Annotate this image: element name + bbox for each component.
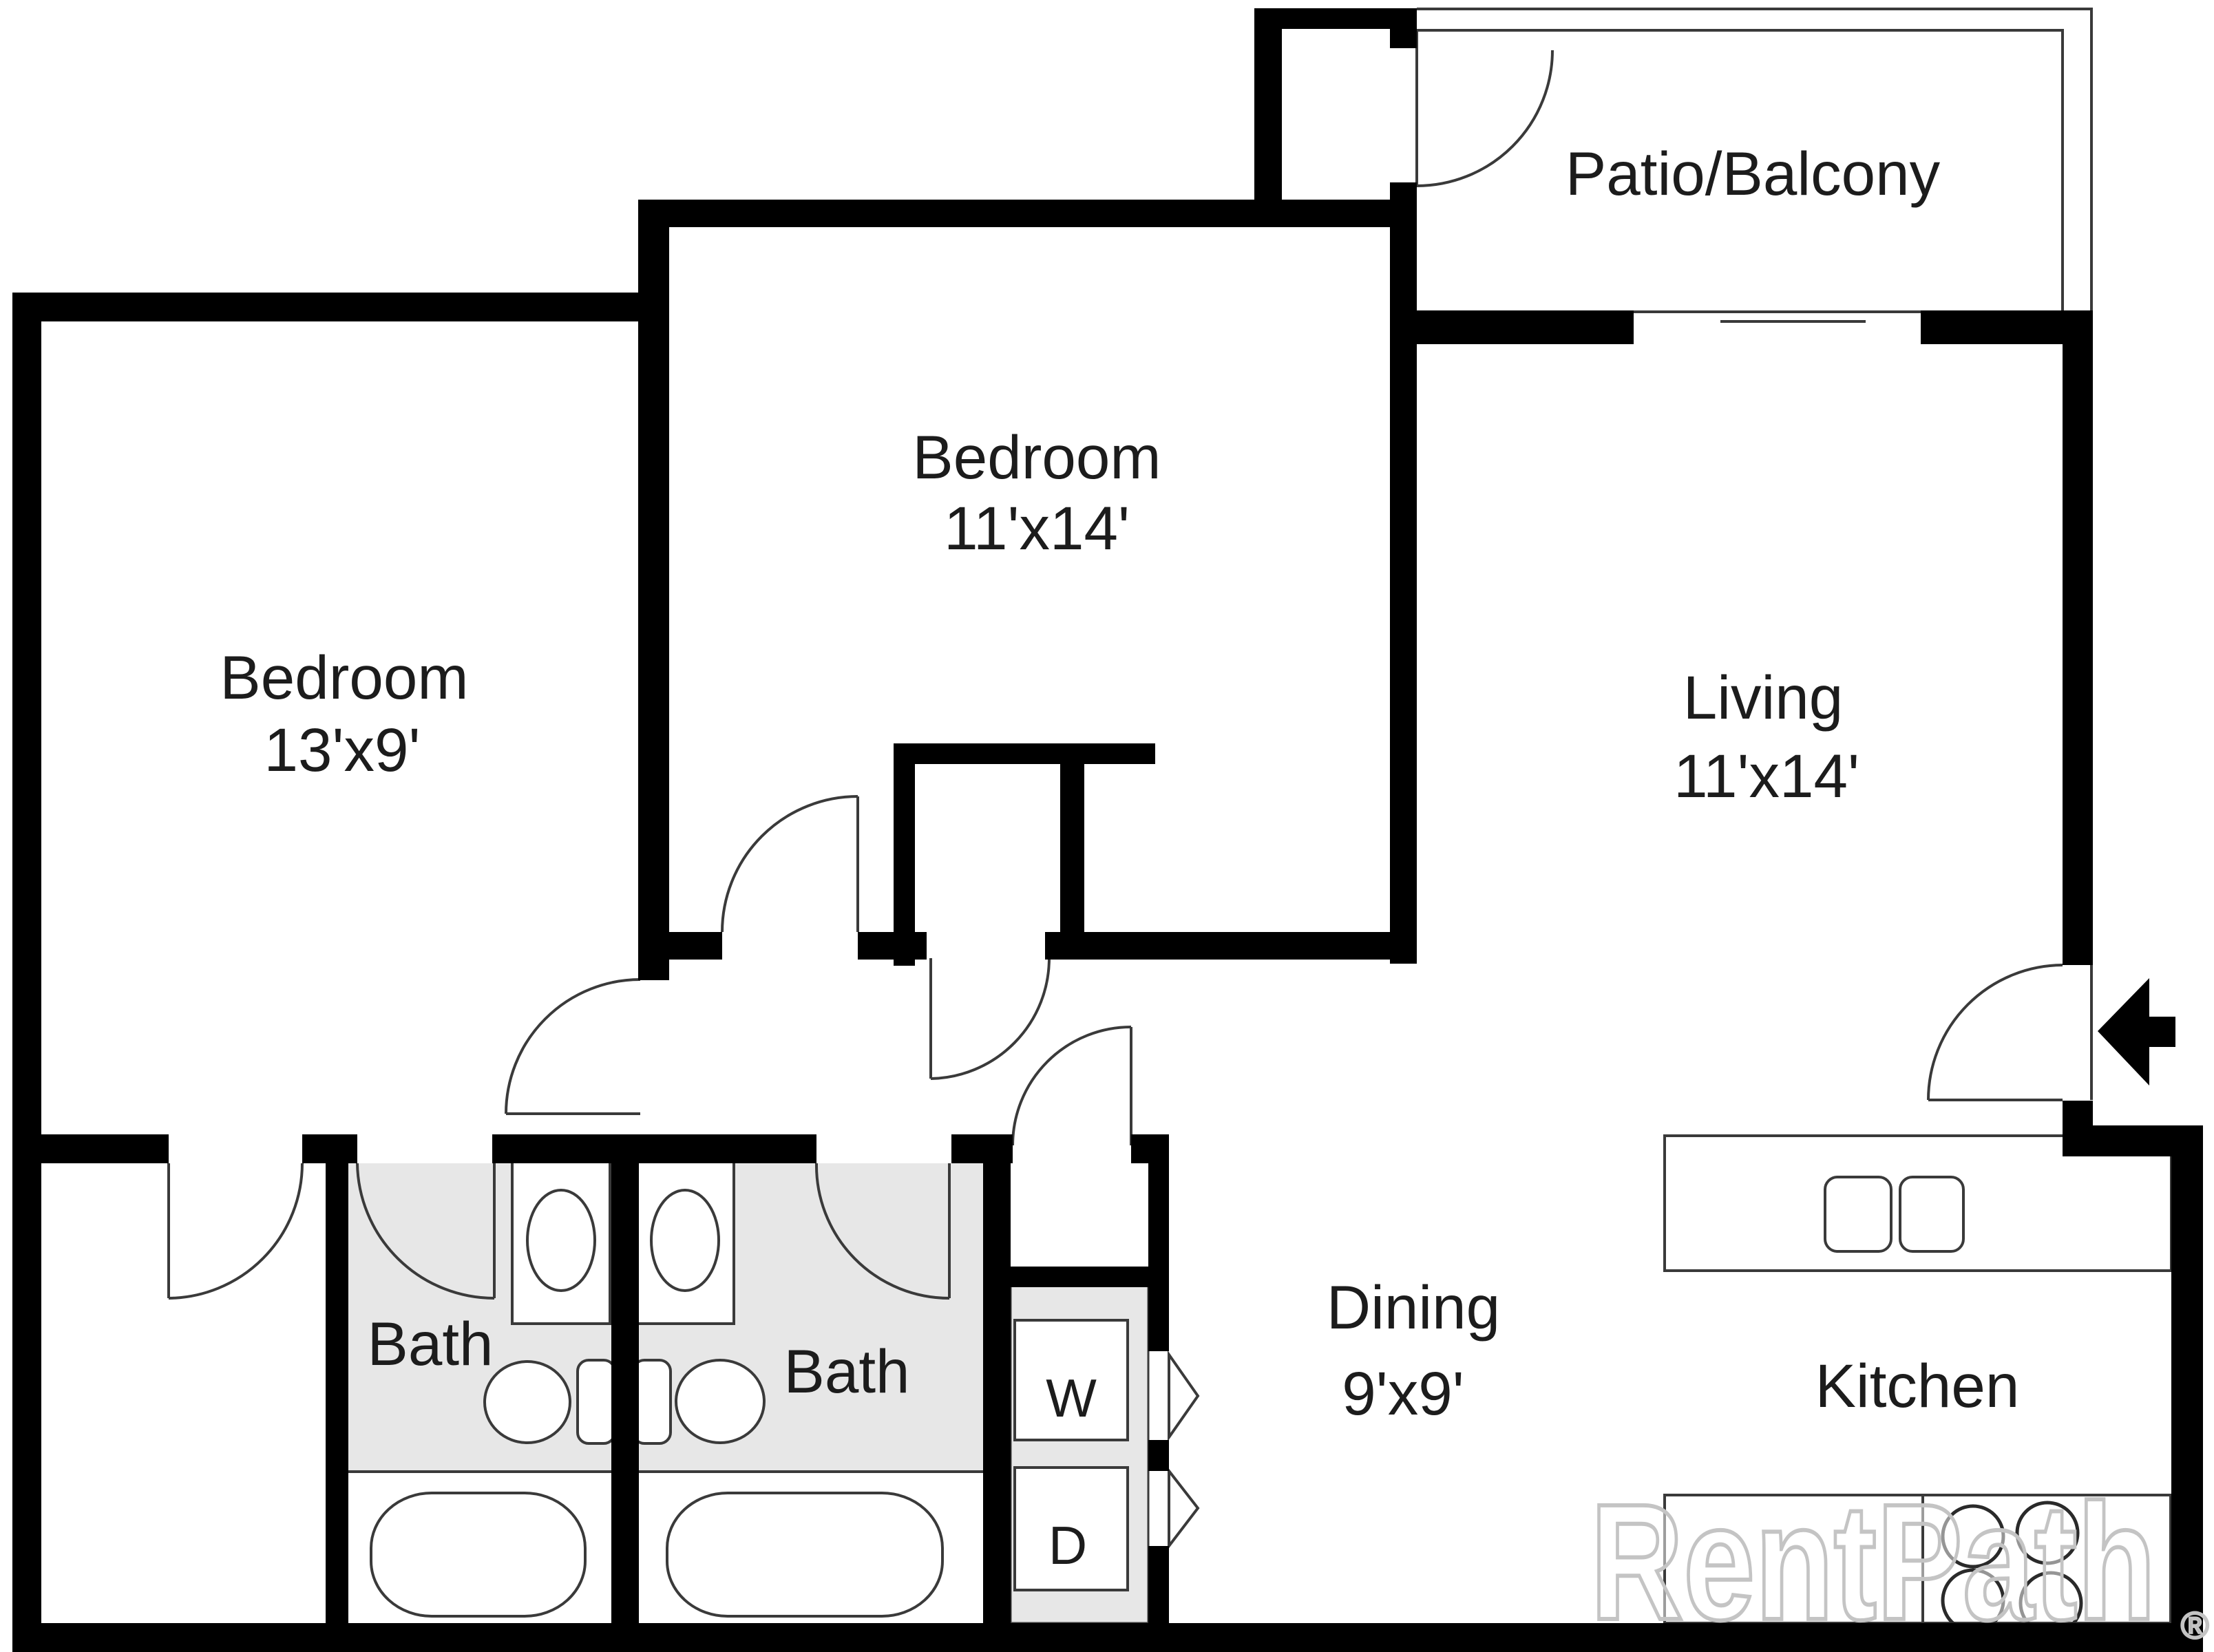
svg-text:Bath: Bath	[783, 1337, 909, 1406]
svg-text:D: D	[1048, 1515, 1087, 1576]
svg-text:Kitchen: Kitchen	[1815, 1351, 2020, 1420]
svg-text:Bedroom: Bedroom	[220, 643, 468, 712]
svg-text:11'x14': 11'x14'	[1674, 741, 1859, 810]
svg-text:Bedroom: Bedroom	[912, 423, 1161, 491]
svg-text:9'x9': 9'x9'	[1342, 1359, 1464, 1428]
svg-text:11'x14': 11'x14'	[944, 494, 1130, 562]
svg-text:®: ®	[2181, 1604, 2209, 1646]
svg-text:Bath: Bath	[367, 1309, 493, 1378]
svg-text:Living: Living	[1683, 663, 1844, 732]
svg-text:13'x9': 13'x9'	[264, 715, 421, 784]
svg-text:RentPath: RentPath	[1590, 1470, 2156, 1652]
svg-text:Patio/Balcony: Patio/Balcony	[1565, 139, 1941, 208]
svg-text:Dining: Dining	[1327, 1273, 1500, 1342]
svg-text:W: W	[1046, 1368, 1097, 1428]
